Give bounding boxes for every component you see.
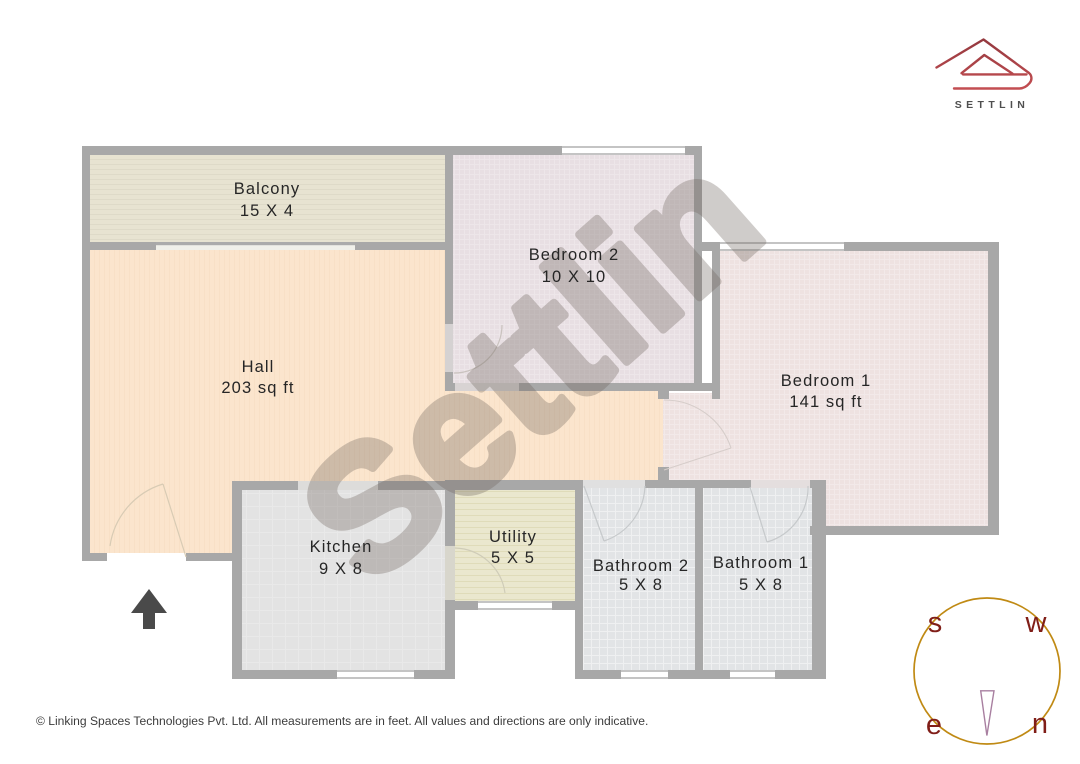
svg-text:10 X 10: 10 X 10 [542,268,607,286]
svg-text:9 X 8: 9 X 8 [319,560,363,578]
svg-text:Balcony: Balcony [234,180,300,198]
svg-text:Bathroom 1: Bathroom 1 [713,554,809,572]
svg-text:n: n [1032,708,1048,740]
svg-text:5 X 8: 5 X 8 [739,576,783,594]
svg-text:s: s [928,607,943,639]
svg-text:Bedroom 2: Bedroom 2 [529,246,620,264]
svg-text:5 X 5: 5 X 5 [491,549,535,567]
svg-text:Utility: Utility [489,528,537,546]
svg-text:e: e [926,709,942,741]
svg-text:Bathroom 2: Bathroom 2 [593,557,689,575]
svg-text:Kitchen: Kitchen [310,538,373,556]
svg-text:w: w [1025,607,1048,639]
svg-text:5 X 8: 5 X 8 [619,576,663,594]
svg-text:203 sq ft: 203 sq ft [221,379,294,397]
svg-text:SETTLIN: SETTLIN [955,99,1030,111]
svg-text:Hall: Hall [242,358,275,376]
svg-text:© Linking Spaces Technologies: © Linking Spaces Technologies Pvt. Ltd. … [36,714,648,728]
svg-text:141 sq ft: 141 sq ft [789,393,862,411]
svg-text:Bedroom 1: Bedroom 1 [781,372,872,390]
svg-text:15 X 4: 15 X 4 [240,202,294,220]
